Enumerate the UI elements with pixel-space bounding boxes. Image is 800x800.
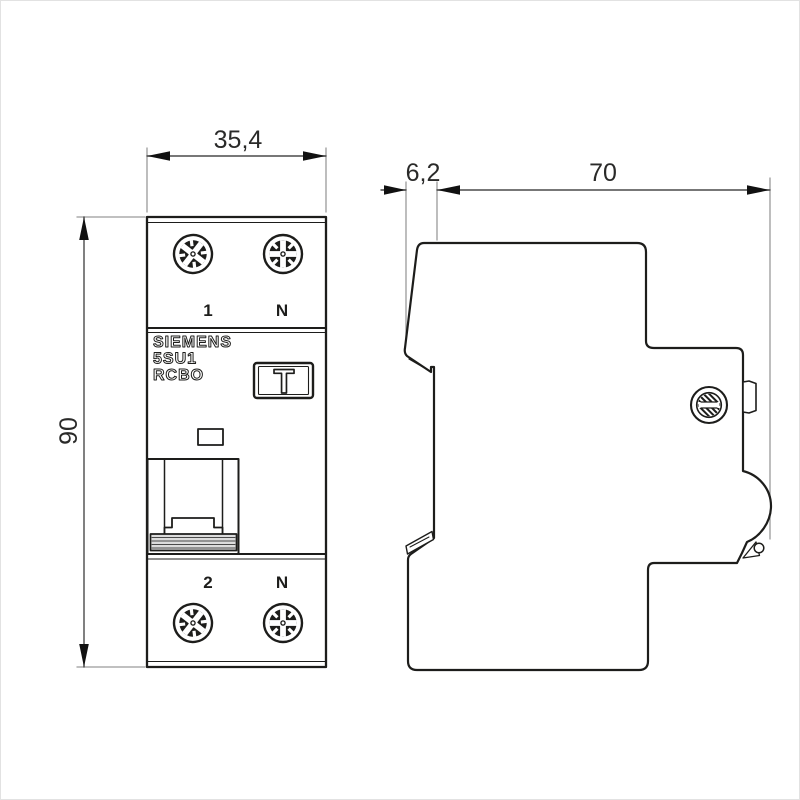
terminal-label-n-top: N: [276, 301, 288, 320]
model-label: 5SU1: [153, 351, 197, 368]
breaker-body-front: [147, 217, 326, 667]
arrow-right-icon: [303, 151, 326, 161]
toggle-switch: [148, 459, 239, 554]
terminal-screw-icon: [263, 234, 302, 273]
brand-label: SIEMENS: [153, 334, 232, 351]
toggle-grip: [151, 534, 237, 551]
dim-front-height-label: 90: [55, 417, 83, 445]
dim-side-front-depth-label: 6,2: [406, 159, 441, 187]
drawing-svg: 35,4 90 1 N SIEMENS 5SU1 RCBO: [1, 1, 800, 800]
arrow-right-icon: [747, 185, 770, 195]
front-view: 35,4 90 1 N SIEMENS 5SU1 RCBO: [55, 126, 326, 667]
arrow-right-icon: [384, 185, 406, 195]
arrow-down-icon: [79, 644, 89, 667]
arrow-up-icon: [79, 217, 89, 240]
dimension-front-width: 35,4: [147, 126, 326, 212]
terminal-label-2: 2: [203, 573, 212, 592]
terminal-screw-icon: [263, 603, 302, 642]
dim-front-width-label: 35,4: [214, 126, 263, 154]
dimension-front-height: 90: [55, 217, 145, 667]
arrow-left-icon: [437, 185, 460, 195]
rear-tab: [743, 381, 756, 413]
breaker-body-side: [405, 243, 771, 670]
side-screw-icon: [691, 387, 727, 423]
arrow-left-icon: [147, 151, 170, 161]
type-label: RCBO: [153, 367, 204, 384]
status-indicator-window: [198, 429, 223, 445]
terminal-label-n-bottom: N: [276, 573, 288, 592]
dimension-drawing: 35,4 90 1 N SIEMENS 5SU1 RCBO: [0, 0, 800, 800]
terminal-label-1: 1: [203, 301, 212, 320]
dim-side-depth-label: 70: [589, 159, 617, 187]
side-view: 6,2 70: [381, 159, 771, 670]
test-button: T: [254, 363, 313, 401]
test-button-label: T: [274, 363, 295, 401]
toggle-handle: [165, 518, 223, 534]
